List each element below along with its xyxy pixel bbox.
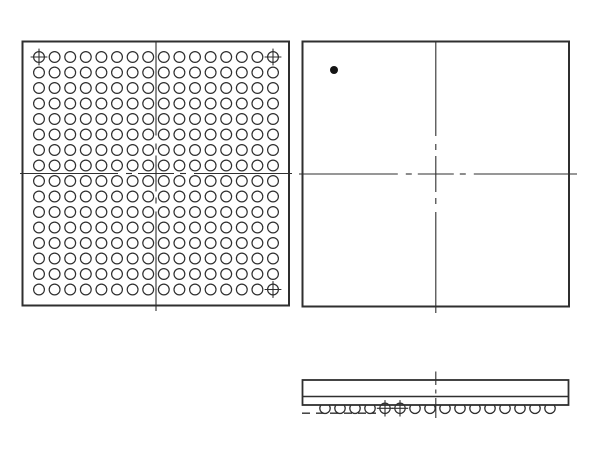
bga-ball bbox=[252, 253, 263, 264]
bga-ball bbox=[143, 52, 154, 63]
bga-ball bbox=[252, 83, 263, 94]
bga-ball bbox=[143, 98, 154, 109]
bga-ball bbox=[34, 176, 45, 187]
bga-ball bbox=[221, 207, 232, 218]
bga-ball bbox=[236, 253, 247, 264]
bga-ball bbox=[190, 129, 201, 140]
bga-ball bbox=[34, 284, 45, 295]
bga-ball bbox=[65, 83, 76, 94]
bga-ball bbox=[174, 67, 185, 78]
bga-ball bbox=[143, 238, 154, 249]
bga-ball bbox=[174, 160, 185, 171]
bga-ball bbox=[49, 67, 60, 78]
bga-ball bbox=[190, 222, 201, 233]
bga-ball bbox=[49, 83, 60, 94]
bga-ball bbox=[65, 207, 76, 218]
bga-ball bbox=[143, 145, 154, 156]
bga-ball bbox=[80, 253, 91, 264]
bga-ball bbox=[268, 176, 279, 187]
bga-ball bbox=[252, 191, 263, 202]
solder-ball bbox=[530, 405, 540, 413]
bga-ball bbox=[205, 160, 216, 171]
bga-ball bbox=[268, 129, 279, 140]
bga-ball bbox=[96, 67, 107, 78]
solder-ball bbox=[515, 405, 525, 413]
bga-ball bbox=[190, 191, 201, 202]
bga-ball bbox=[158, 191, 169, 202]
bga-ball bbox=[205, 114, 216, 125]
bga-ball bbox=[174, 238, 185, 249]
bga-ball bbox=[268, 67, 279, 78]
bga-ball bbox=[34, 253, 45, 264]
bga-ball bbox=[49, 52, 60, 63]
bga-ball bbox=[143, 207, 154, 218]
bga-ball bbox=[112, 98, 123, 109]
fiducial-ball bbox=[265, 49, 282, 66]
bga-ball bbox=[236, 284, 247, 295]
bga-ball bbox=[236, 129, 247, 140]
bga-ball bbox=[96, 83, 107, 94]
bga-ball bbox=[174, 191, 185, 202]
bga-ball bbox=[127, 269, 138, 280]
bga-ball bbox=[205, 253, 216, 264]
bga-ball bbox=[236, 83, 247, 94]
bga-ball bbox=[252, 269, 263, 280]
bga-ball bbox=[221, 129, 232, 140]
bga-ball bbox=[236, 160, 247, 171]
bga-ball bbox=[158, 253, 169, 264]
bga-ball bbox=[268, 253, 279, 264]
bga-ball bbox=[221, 145, 232, 156]
bga-ball bbox=[96, 145, 107, 156]
bga-ball bbox=[80, 269, 91, 280]
bga-ball bbox=[112, 238, 123, 249]
bga-ball bbox=[236, 67, 247, 78]
bga-ball bbox=[221, 160, 232, 171]
bga-ball bbox=[65, 176, 76, 187]
bga-ball bbox=[205, 176, 216, 187]
bga-ball bbox=[96, 52, 107, 63]
bga-ball bbox=[221, 67, 232, 78]
bga-ball bbox=[34, 83, 45, 94]
bga-ball bbox=[65, 284, 76, 295]
bga-ball bbox=[174, 129, 185, 140]
bga-ball bbox=[205, 222, 216, 233]
bga-ball bbox=[96, 222, 107, 233]
bga-ball bbox=[143, 129, 154, 140]
bga-ball bbox=[112, 145, 123, 156]
bga-ball bbox=[112, 176, 123, 187]
bga-ball bbox=[65, 145, 76, 156]
bga-ball bbox=[221, 284, 232, 295]
bga-ball bbox=[143, 67, 154, 78]
bga-ball bbox=[127, 114, 138, 125]
bga-ball bbox=[174, 269, 185, 280]
solder-ball bbox=[410, 405, 420, 413]
bga-ball bbox=[158, 176, 169, 187]
solder-ball bbox=[470, 405, 480, 413]
bga-ball bbox=[65, 129, 76, 140]
bga-ball bbox=[127, 129, 138, 140]
bga-ball bbox=[80, 83, 91, 94]
bga-ball bbox=[80, 145, 91, 156]
bga-ball bbox=[236, 222, 247, 233]
bga-ball bbox=[127, 238, 138, 249]
solder-ball bbox=[455, 405, 465, 413]
bga-ball bbox=[252, 222, 263, 233]
bga-ball bbox=[190, 67, 201, 78]
bga-ball bbox=[112, 160, 123, 171]
bga-ball bbox=[236, 191, 247, 202]
bga-ball bbox=[65, 238, 76, 249]
bga-ball bbox=[49, 176, 60, 187]
bga-ball bbox=[174, 207, 185, 218]
bga-ball bbox=[190, 269, 201, 280]
bga-ball bbox=[127, 98, 138, 109]
bga-ball bbox=[127, 67, 138, 78]
bga-ball bbox=[158, 129, 169, 140]
solder-ball bbox=[485, 405, 495, 413]
bga-ball bbox=[268, 269, 279, 280]
bga-ball bbox=[158, 114, 169, 125]
bga-ball bbox=[143, 83, 154, 94]
bga-ball bbox=[205, 145, 216, 156]
bga-ball bbox=[190, 98, 201, 109]
bga-ball bbox=[252, 114, 263, 125]
bga-ball bbox=[112, 114, 123, 125]
bga-ball bbox=[252, 176, 263, 187]
bga-ball bbox=[96, 269, 107, 280]
bga-ball bbox=[80, 52, 91, 63]
bga-ball bbox=[174, 284, 185, 295]
bga-ball bbox=[158, 284, 169, 295]
bga-ball bbox=[127, 191, 138, 202]
bga-ball bbox=[268, 207, 279, 218]
bga-ball bbox=[174, 98, 185, 109]
bga-ball bbox=[205, 191, 216, 202]
bga-ball bbox=[205, 67, 216, 78]
bga-ball bbox=[34, 238, 45, 249]
bga-ball bbox=[190, 83, 201, 94]
bga-ball bbox=[49, 253, 60, 264]
bga-ball bbox=[205, 98, 216, 109]
bga-ball bbox=[236, 114, 247, 125]
bga-ball bbox=[158, 207, 169, 218]
bga-ball bbox=[127, 145, 138, 156]
bga-ball bbox=[236, 269, 247, 280]
bga-ball bbox=[190, 207, 201, 218]
bga-ball bbox=[268, 191, 279, 202]
bga-ball bbox=[65, 269, 76, 280]
bga-ball bbox=[65, 67, 76, 78]
bga-ball bbox=[190, 145, 201, 156]
bga-ball bbox=[34, 191, 45, 202]
bga-ball bbox=[252, 98, 263, 109]
bga-ball bbox=[127, 253, 138, 264]
bga-ball bbox=[96, 129, 107, 140]
bga-ball bbox=[143, 114, 154, 125]
bga-ball bbox=[96, 176, 107, 187]
bga-ball bbox=[143, 284, 154, 295]
bga-ball bbox=[190, 52, 201, 63]
solder-ball bbox=[545, 405, 555, 413]
bga-ball bbox=[65, 160, 76, 171]
bga-ball bbox=[205, 238, 216, 249]
bga-ball bbox=[174, 222, 185, 233]
bga-ball bbox=[221, 52, 232, 63]
bga-ball bbox=[96, 238, 107, 249]
bga-ball bbox=[80, 238, 91, 249]
bga-ball bbox=[112, 67, 123, 78]
bga-ball bbox=[127, 176, 138, 187]
bga-ball bbox=[80, 176, 91, 187]
drawing-canvas bbox=[0, 0, 600, 450]
bga-ball bbox=[34, 129, 45, 140]
bga-ball bbox=[268, 145, 279, 156]
bga-ball bbox=[49, 98, 60, 109]
bga-ball bbox=[127, 52, 138, 63]
bga-ball bbox=[96, 160, 107, 171]
bga-ball bbox=[80, 67, 91, 78]
solder-ball bbox=[425, 405, 435, 413]
bga-ball bbox=[34, 67, 45, 78]
pin1-indicator-dot bbox=[330, 66, 338, 74]
solder-ball bbox=[335, 405, 345, 413]
bga-ball bbox=[268, 98, 279, 109]
bga-ball bbox=[158, 222, 169, 233]
bga-ball bbox=[49, 160, 60, 171]
bga-ball bbox=[65, 52, 76, 63]
bga-ball bbox=[112, 269, 123, 280]
bga-ball bbox=[127, 207, 138, 218]
bga-ball bbox=[236, 98, 247, 109]
bga-ball bbox=[158, 83, 169, 94]
bga-ball bbox=[205, 83, 216, 94]
side-fiducial-ball bbox=[377, 400, 393, 416]
fiducial-ball bbox=[31, 49, 48, 66]
bga-ball bbox=[49, 207, 60, 218]
bga-ball bbox=[221, 269, 232, 280]
bga-ball bbox=[236, 52, 247, 63]
bga-ball bbox=[80, 207, 91, 218]
bga-ball bbox=[268, 114, 279, 125]
bga-ball bbox=[174, 52, 185, 63]
bga-ball bbox=[49, 114, 60, 125]
bga-ball bbox=[190, 238, 201, 249]
bga-ball bbox=[236, 176, 247, 187]
bga-ball bbox=[252, 238, 263, 249]
bga-ball bbox=[34, 145, 45, 156]
bga-ball bbox=[221, 114, 232, 125]
bga-ball bbox=[96, 253, 107, 264]
bga-ball bbox=[236, 238, 247, 249]
bga-ball bbox=[65, 222, 76, 233]
bga-ball bbox=[80, 222, 91, 233]
bga-ball bbox=[221, 83, 232, 94]
bga-ball bbox=[205, 52, 216, 63]
bga-ball bbox=[190, 160, 201, 171]
bga-ball bbox=[112, 284, 123, 295]
bga-ball bbox=[190, 176, 201, 187]
bga-package-outline-drawing bbox=[0, 0, 600, 450]
bga-ball bbox=[268, 222, 279, 233]
bga-ball bbox=[221, 98, 232, 109]
solder-ball bbox=[320, 405, 330, 413]
bga-ball bbox=[143, 176, 154, 187]
bga-ball bbox=[221, 222, 232, 233]
solder-ball bbox=[440, 405, 450, 413]
bga-ball bbox=[205, 129, 216, 140]
bga-ball bbox=[49, 145, 60, 156]
bga-ball bbox=[127, 222, 138, 233]
bga-ball bbox=[112, 253, 123, 264]
bga-ball bbox=[236, 145, 247, 156]
side-ball-row bbox=[320, 400, 555, 416]
bga-ball bbox=[252, 207, 263, 218]
bga-ball bbox=[268, 160, 279, 171]
bga-ball bbox=[96, 98, 107, 109]
bga-ball bbox=[252, 145, 263, 156]
bga-ball bbox=[174, 114, 185, 125]
bga-ball bbox=[236, 207, 247, 218]
bga-ball bbox=[127, 83, 138, 94]
bga-ball bbox=[34, 114, 45, 125]
bga-ball bbox=[174, 176, 185, 187]
bga-ball bbox=[34, 160, 45, 171]
bga-ball bbox=[190, 253, 201, 264]
bga-ball bbox=[127, 160, 138, 171]
bga-ball bbox=[205, 207, 216, 218]
bga-ball bbox=[205, 284, 216, 295]
bga-ball bbox=[205, 269, 216, 280]
bga-ball bbox=[221, 191, 232, 202]
bga-ball bbox=[252, 67, 263, 78]
bga-ball bbox=[221, 253, 232, 264]
bga-ball bbox=[158, 67, 169, 78]
bga-ball bbox=[96, 207, 107, 218]
bga-ball bbox=[112, 191, 123, 202]
bga-ball bbox=[80, 114, 91, 125]
bga-ball bbox=[34, 207, 45, 218]
bga-ball bbox=[49, 238, 60, 249]
bga-ball bbox=[158, 98, 169, 109]
bga-ball bbox=[80, 98, 91, 109]
bga-ball bbox=[143, 160, 154, 171]
bga-ball bbox=[143, 191, 154, 202]
bga-ball bbox=[80, 160, 91, 171]
bga-ball bbox=[112, 222, 123, 233]
bga-ball bbox=[158, 238, 169, 249]
bga-ball bbox=[252, 284, 263, 295]
bga-ball bbox=[34, 269, 45, 280]
bga-ball bbox=[96, 114, 107, 125]
bga-ball bbox=[80, 129, 91, 140]
bga-ball bbox=[143, 222, 154, 233]
bga-ball bbox=[112, 83, 123, 94]
solder-ball bbox=[365, 405, 375, 413]
bga-ball bbox=[127, 284, 138, 295]
bga-ball bbox=[112, 207, 123, 218]
solder-ball bbox=[500, 405, 510, 413]
bga-ball bbox=[190, 114, 201, 125]
bga-ball bbox=[252, 52, 263, 63]
bga-ball bbox=[65, 191, 76, 202]
bga-ball bbox=[252, 160, 263, 171]
bga-ball bbox=[65, 114, 76, 125]
bga-ball bbox=[49, 222, 60, 233]
bga-ball bbox=[112, 129, 123, 140]
bga-ball bbox=[49, 191, 60, 202]
bga-ball bbox=[96, 191, 107, 202]
bga-ball bbox=[174, 83, 185, 94]
bga-ball bbox=[49, 269, 60, 280]
bga-ball bbox=[174, 253, 185, 264]
bga-ball bbox=[143, 253, 154, 264]
bga-ball bbox=[221, 238, 232, 249]
bga-ball bbox=[268, 238, 279, 249]
side-fiducial-ball bbox=[392, 400, 408, 416]
bga-ball bbox=[158, 52, 169, 63]
bga-ball bbox=[96, 284, 107, 295]
bga-ball bbox=[190, 284, 201, 295]
bga-ball bbox=[65, 253, 76, 264]
bga-ball bbox=[158, 269, 169, 280]
bga-ball bbox=[158, 145, 169, 156]
bga-ball bbox=[80, 191, 91, 202]
bga-ball bbox=[49, 284, 60, 295]
bga-ball bbox=[80, 284, 91, 295]
bga-ball bbox=[221, 176, 232, 187]
fiducial-ball bbox=[265, 281, 282, 298]
solder-ball bbox=[350, 405, 360, 413]
bga-ball bbox=[112, 52, 123, 63]
bga-ball bbox=[252, 129, 263, 140]
bga-ball bbox=[34, 222, 45, 233]
bga-ball bbox=[34, 98, 45, 109]
bga-ball bbox=[143, 269, 154, 280]
bga-ball bbox=[65, 98, 76, 109]
bga-ball bbox=[174, 145, 185, 156]
bga-ball bbox=[268, 83, 279, 94]
bga-ball bbox=[49, 129, 60, 140]
bga-ball bbox=[158, 160, 169, 171]
